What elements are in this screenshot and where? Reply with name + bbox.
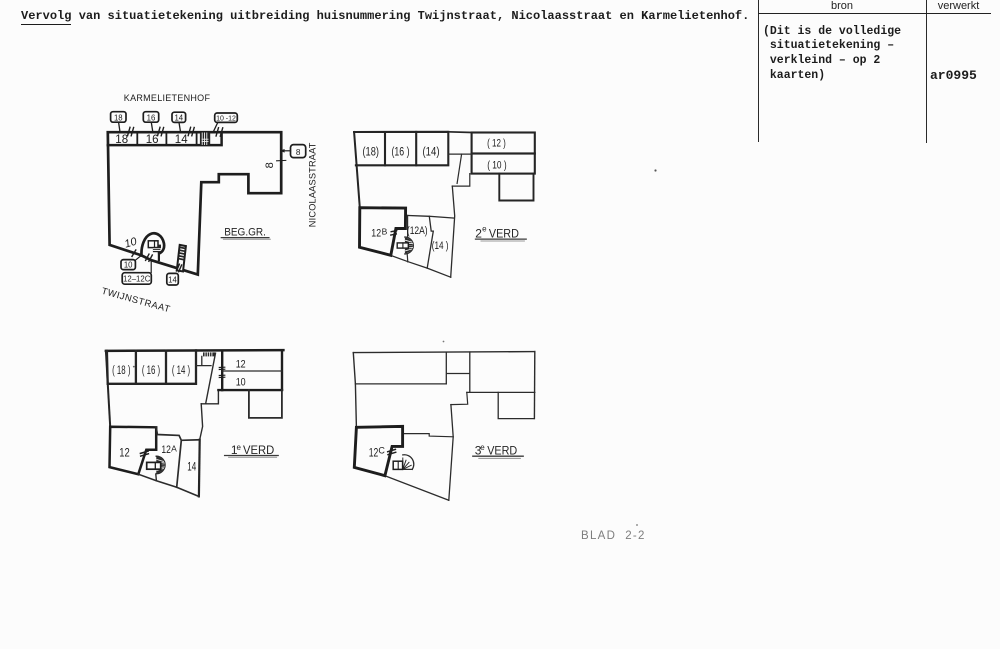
svg-text:BEG.GR.: BEG.GR. [224,227,266,239]
svg-text:8: 8 [264,162,276,168]
svg-text:16: 16 [147,113,156,122]
svg-text:(12A): (12A) [407,225,428,237]
svg-text:18: 18 [115,134,128,146]
svg-text:VERD: VERD [487,444,517,458]
svg-text:(16 ): (16 ) [392,147,410,159]
svg-text:(18): (18) [362,147,379,159]
svg-text:( 10 ): ( 10 ) [487,160,506,172]
svg-text:18: 18 [114,113,123,122]
svg-text:( 14 ): ( 14 ) [172,365,190,377]
svg-text:10 -12: 10 -12 [216,115,236,122]
svg-text:C: C [378,446,385,456]
svg-text:TWIJNSTRAAT: TWIJNSTRAAT [100,285,171,315]
svg-text:NICOLAASSTRAAT: NICOLAASSTRAAT [308,142,318,227]
svg-text:VERD: VERD [489,227,519,241]
svg-text:14: 14 [168,275,177,284]
svg-text:14: 14 [174,114,183,123]
svg-text:10: 10 [123,235,139,250]
svg-text:12: 12 [371,228,381,240]
svg-text:8: 8 [296,148,301,157]
svg-text:A: A [171,443,177,453]
svg-text:(14 ): (14 ) [432,240,449,252]
svg-text:16: 16 [146,134,159,146]
svg-text:10: 10 [124,261,133,270]
svg-text:14: 14 [175,134,188,146]
svg-text:12: 12 [236,358,246,370]
svg-text:( 12 ): ( 12 ) [487,137,506,149]
svg-text:12: 12 [119,448,130,460]
svg-text:14: 14 [187,461,196,473]
svg-text:( 18 ): ( 18 ) [112,365,130,377]
svg-text:12–12C: 12–12C [123,275,151,284]
svg-text:KARMELIETENHOF: KARMELIETENHOF [124,93,211,103]
svg-text:12: 12 [161,444,171,456]
svg-text:B: B [382,227,388,237]
svg-text:10: 10 [236,377,246,389]
svg-text:e: e [480,443,485,452]
svg-text:(14): (14) [423,147,440,159]
svg-text:VERD: VERD [243,443,275,457]
svg-text:( 16 ): ( 16 ) [142,365,160,377]
svg-text:e: e [482,225,487,234]
svg-text:e: e [237,443,242,452]
svg-text:12: 12 [369,447,379,459]
